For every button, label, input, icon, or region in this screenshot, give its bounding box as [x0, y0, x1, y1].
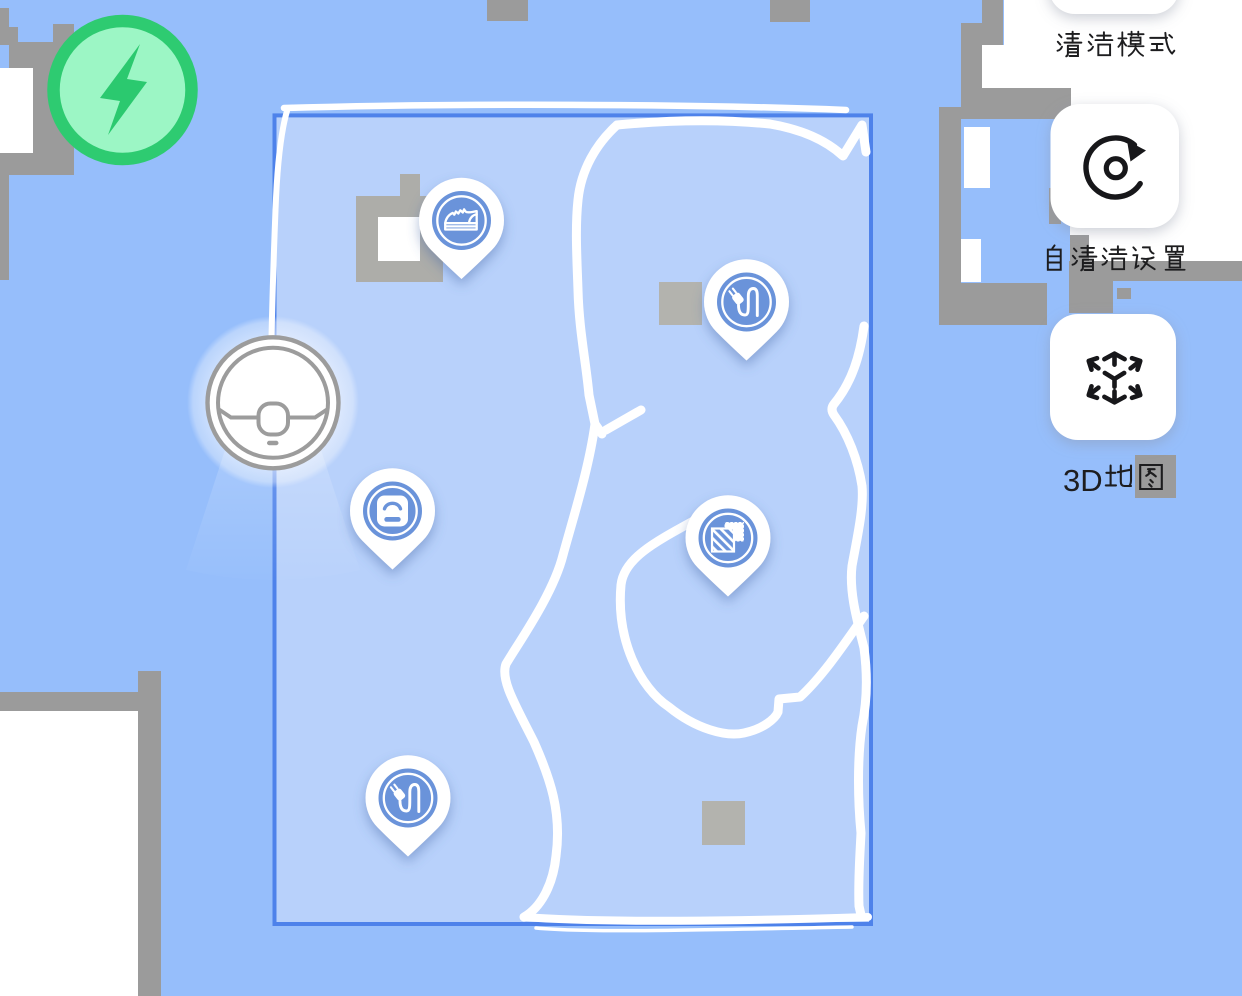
svg-text:3D: 3D [1063, 463, 1103, 498]
